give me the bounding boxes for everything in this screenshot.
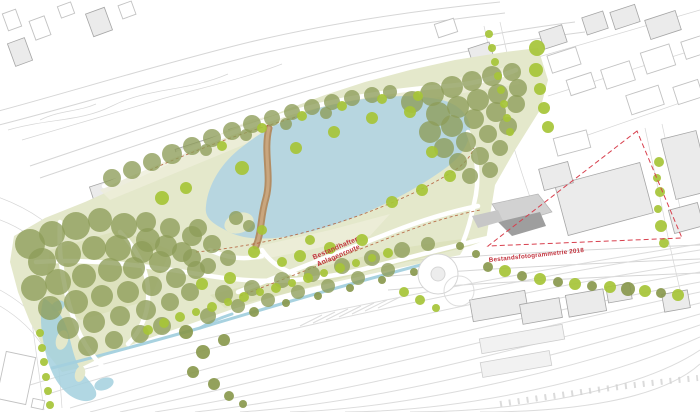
tree-canopy (105, 235, 131, 261)
tree-dark (208, 378, 220, 390)
tree-bright (529, 63, 543, 77)
tree-canopy (142, 276, 162, 296)
tree-bright (175, 312, 185, 322)
building-outline (0, 351, 36, 404)
tree-canopy (321, 279, 335, 293)
tree-dark (656, 288, 666, 298)
tree-bright (207, 302, 217, 312)
tree-bright (416, 184, 428, 196)
roundabout (418, 254, 474, 306)
tree-canopy (88, 208, 112, 232)
building (565, 289, 606, 317)
tree-bright (46, 401, 54, 409)
tree-canopy (91, 285, 113, 307)
tree-canopy (320, 107, 332, 119)
tree-bright (497, 86, 505, 94)
tree-canopy (200, 258, 216, 274)
tree-bright (40, 358, 48, 366)
tree-bright (542, 121, 554, 133)
tree-bright (529, 40, 545, 56)
tree-bright (485, 30, 493, 38)
tree-bright (534, 83, 546, 95)
tree-bright (534, 273, 546, 285)
tree-dark (621, 282, 635, 296)
tree-bright (404, 106, 416, 118)
tree-bright (305, 235, 315, 245)
tree-bright (399, 287, 409, 297)
tree-bright (604, 281, 616, 293)
tree-bright (196, 278, 208, 290)
tree-canopy (64, 290, 88, 314)
tree-bright (143, 325, 153, 335)
building-outline (681, 35, 700, 60)
tree-canopy (38, 296, 62, 320)
tree-bright (335, 263, 345, 273)
tree-canopy (441, 115, 463, 137)
tree-dark (196, 345, 210, 359)
building-outline (57, 2, 74, 18)
tree-bright (653, 174, 661, 182)
tree-dark (239, 400, 247, 408)
building (661, 131, 700, 200)
tree-canopy (55, 241, 81, 267)
tree-bright (654, 157, 664, 167)
tree-bright (426, 146, 438, 158)
tree-canopy (123, 257, 145, 279)
tree-bright (257, 225, 267, 235)
tree-bright (503, 114, 511, 122)
tree-canopy (421, 237, 435, 251)
tree-canopy (492, 140, 508, 156)
tree-canopy (136, 300, 156, 320)
tree-bright (294, 250, 306, 262)
tree-canopy (229, 211, 243, 225)
tree-bright (180, 182, 192, 194)
tree-bright (672, 289, 684, 301)
tree-canopy (344, 90, 360, 106)
tree-bright (224, 298, 232, 306)
building-outline (2, 9, 21, 31)
tree-canopy (161, 293, 179, 311)
site-plan-page: Bestandsfotogrammetrie 2018 Bestandhafte… (0, 0, 700, 412)
tree-canopy (291, 285, 305, 299)
tree-bright (159, 318, 169, 328)
tree-bright (297, 111, 307, 121)
tree-canopy (240, 129, 252, 141)
tree-canopy (223, 122, 241, 140)
tree-bright (444, 170, 456, 182)
tree-canopy (441, 76, 463, 98)
tree-bright (386, 196, 398, 208)
tree-bright (488, 44, 496, 52)
building (645, 11, 682, 40)
tree-canopy (21, 275, 47, 301)
tree-bright (256, 288, 264, 296)
tree-bright (328, 126, 340, 138)
tree-bright (569, 278, 581, 290)
tree-canopy (117, 281, 139, 303)
tree-canopy (162, 144, 182, 164)
tree-dark (472, 250, 480, 258)
tree-bright (257, 123, 267, 133)
tree-canopy (394, 242, 410, 258)
tree-bright (337, 101, 347, 111)
tree-canopy (304, 99, 320, 115)
tree-bright (192, 308, 200, 316)
tree-bright (413, 91, 423, 101)
tree-canopy (45, 269, 71, 295)
tree-bright (290, 142, 302, 154)
tree-dark (187, 366, 199, 378)
tree-canopy (462, 71, 482, 91)
tree-canopy (462, 168, 478, 184)
tree-bright (366, 112, 378, 124)
tree-dark (378, 276, 386, 284)
building-outline (566, 72, 596, 95)
tree-dark (456, 242, 464, 250)
tree-bright (235, 161, 249, 175)
tree-canopy (351, 271, 365, 285)
tree-dark (179, 325, 193, 339)
tree-canopy (280, 118, 292, 130)
building-outline (673, 79, 700, 104)
tree-bright (655, 220, 667, 232)
rail-platform (479, 324, 564, 353)
tree-canopy (82, 236, 106, 260)
tree-bright (639, 285, 651, 297)
tree-dark (587, 281, 597, 291)
tree-dark (553, 277, 563, 287)
tree-bright (239, 292, 249, 302)
building (582, 11, 608, 35)
tree-canopy (189, 219, 207, 237)
tree-canopy (509, 79, 527, 97)
tree-bright (277, 257, 287, 267)
tree-canopy (136, 212, 156, 232)
tree-bright (494, 72, 502, 80)
tree-canopy (103, 169, 121, 187)
building-outline (547, 47, 581, 73)
building-outline (553, 130, 591, 156)
tree-bright (38, 344, 46, 352)
tree-canopy (183, 249, 201, 267)
tree-canopy (381, 263, 395, 277)
tree-bright (659, 238, 669, 248)
tree-canopy (471, 147, 489, 165)
tree-canopy (62, 212, 90, 240)
tree-canopy (143, 153, 161, 171)
tree-dark (314, 292, 322, 300)
tree-canopy (419, 121, 441, 143)
tree-canopy (105, 331, 123, 349)
tree-bright (155, 191, 169, 205)
building (610, 4, 640, 29)
tree-canopy (83, 311, 105, 333)
tree-canopy (166, 268, 186, 288)
tree-bright (320, 269, 328, 277)
tree-canopy (261, 293, 275, 307)
tree-canopy (57, 317, 79, 339)
tree-bright (368, 254, 376, 262)
tree-canopy (72, 264, 96, 288)
building-outline (118, 1, 136, 19)
tree-bright (42, 373, 50, 381)
tree-dark (249, 307, 259, 317)
tree-bright (654, 205, 662, 213)
building-outline (31, 398, 45, 409)
building-outline (29, 16, 51, 40)
tree-canopy (456, 132, 476, 152)
tree-canopy (503, 63, 521, 81)
tree-dark (282, 299, 290, 307)
tree-canopy (203, 235, 221, 253)
tree-bright (499, 265, 511, 277)
tree-canopy (243, 220, 255, 232)
building (85, 7, 112, 36)
tree-bright (352, 259, 360, 267)
tree-bright (271, 283, 281, 293)
building (7, 38, 32, 67)
tree-bright (655, 187, 665, 197)
tree-dark (224, 391, 234, 401)
tree-bright (500, 100, 508, 108)
tree-canopy (111, 213, 137, 239)
tree-canopy (449, 153, 467, 171)
tree-dark (517, 271, 527, 281)
building-outline (640, 44, 675, 74)
tree-bright (224, 272, 236, 284)
site-plan-map: Bestandsfotogrammetrie 2018 Bestandhafte… (0, 0, 700, 412)
tree-dark (218, 334, 230, 346)
survey-area-label: Bestandsfotogrammetrie 2018 (488, 247, 584, 264)
tree-bright (383, 248, 393, 258)
tree-canopy (479, 125, 497, 143)
tree-canopy (220, 250, 236, 266)
tree-bright (44, 387, 52, 395)
tree-bright (491, 58, 499, 66)
tree-dark (410, 268, 418, 276)
tree-canopy (507, 95, 525, 113)
tree-bright (36, 329, 44, 337)
tree-bright (303, 273, 313, 283)
tree-canopy (160, 218, 180, 238)
tree-canopy (264, 110, 280, 126)
tree-bright (288, 279, 296, 287)
tree-canopy (149, 251, 171, 273)
tree-canopy (482, 162, 498, 178)
tree-canopy (123, 161, 141, 179)
tree-bright (248, 246, 260, 258)
tree-bright (432, 304, 440, 312)
tree-canopy (98, 258, 122, 282)
track-switch-ladder (300, 297, 400, 326)
tree-canopy (78, 336, 98, 356)
tree-bright (377, 94, 387, 104)
tree-canopy (464, 109, 484, 129)
tree-canopy (183, 137, 201, 155)
tree-bright (415, 295, 425, 305)
tree-bright (538, 102, 550, 114)
building-outline (601, 61, 636, 89)
tree-dark (346, 284, 354, 292)
tree-bright (506, 128, 514, 136)
tree-canopy (467, 89, 489, 111)
tree-bright (217, 141, 227, 151)
tree-canopy (110, 306, 130, 326)
